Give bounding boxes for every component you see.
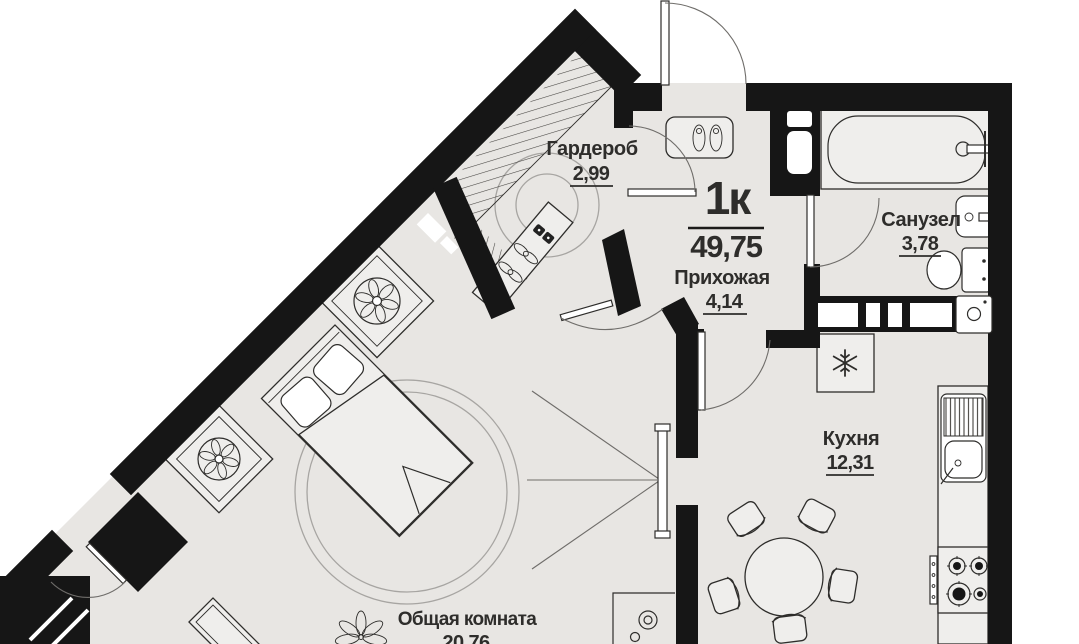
kitchen-sink [941,394,986,484]
svg-text:12,31: 12,31 [826,452,874,474]
shoe-cabinet [666,117,733,158]
dining-table [745,538,823,616]
svg-text:3,78: 3,78 [902,233,939,255]
fridge-snowflake [817,334,874,392]
entry-door [661,1,746,85]
svg-text:Санузел: Санузел [881,209,960,231]
floor-plan: 1к 49,75 Гардероб 2,99 Прихожая 4,14 Сан… [0,0,1079,644]
svg-text:Прихожая: Прихожая [674,267,769,289]
svg-text:Гардероб: Гардероб [546,138,637,160]
bathtub [821,110,992,189]
room-label-kitchen: Кухня 12,31 [823,428,879,475]
svg-text:2,99: 2,99 [573,163,610,185]
total-area-label: 49,75 [690,229,763,264]
svg-text:Общая комната: Общая комната [398,609,538,630]
svg-text:Кухня: Кухня [823,428,879,450]
svg-text:4,14: 4,14 [706,291,744,313]
floor-plan-svg: 1к 49,75 Гардероб 2,99 Прихожая 4,14 Сан… [0,0,1079,644]
washing-machine [956,296,992,333]
stove-burners [930,547,989,613]
apartment-type-label: 1к [705,172,753,224]
svg-text:20,76: 20,76 [442,632,490,644]
